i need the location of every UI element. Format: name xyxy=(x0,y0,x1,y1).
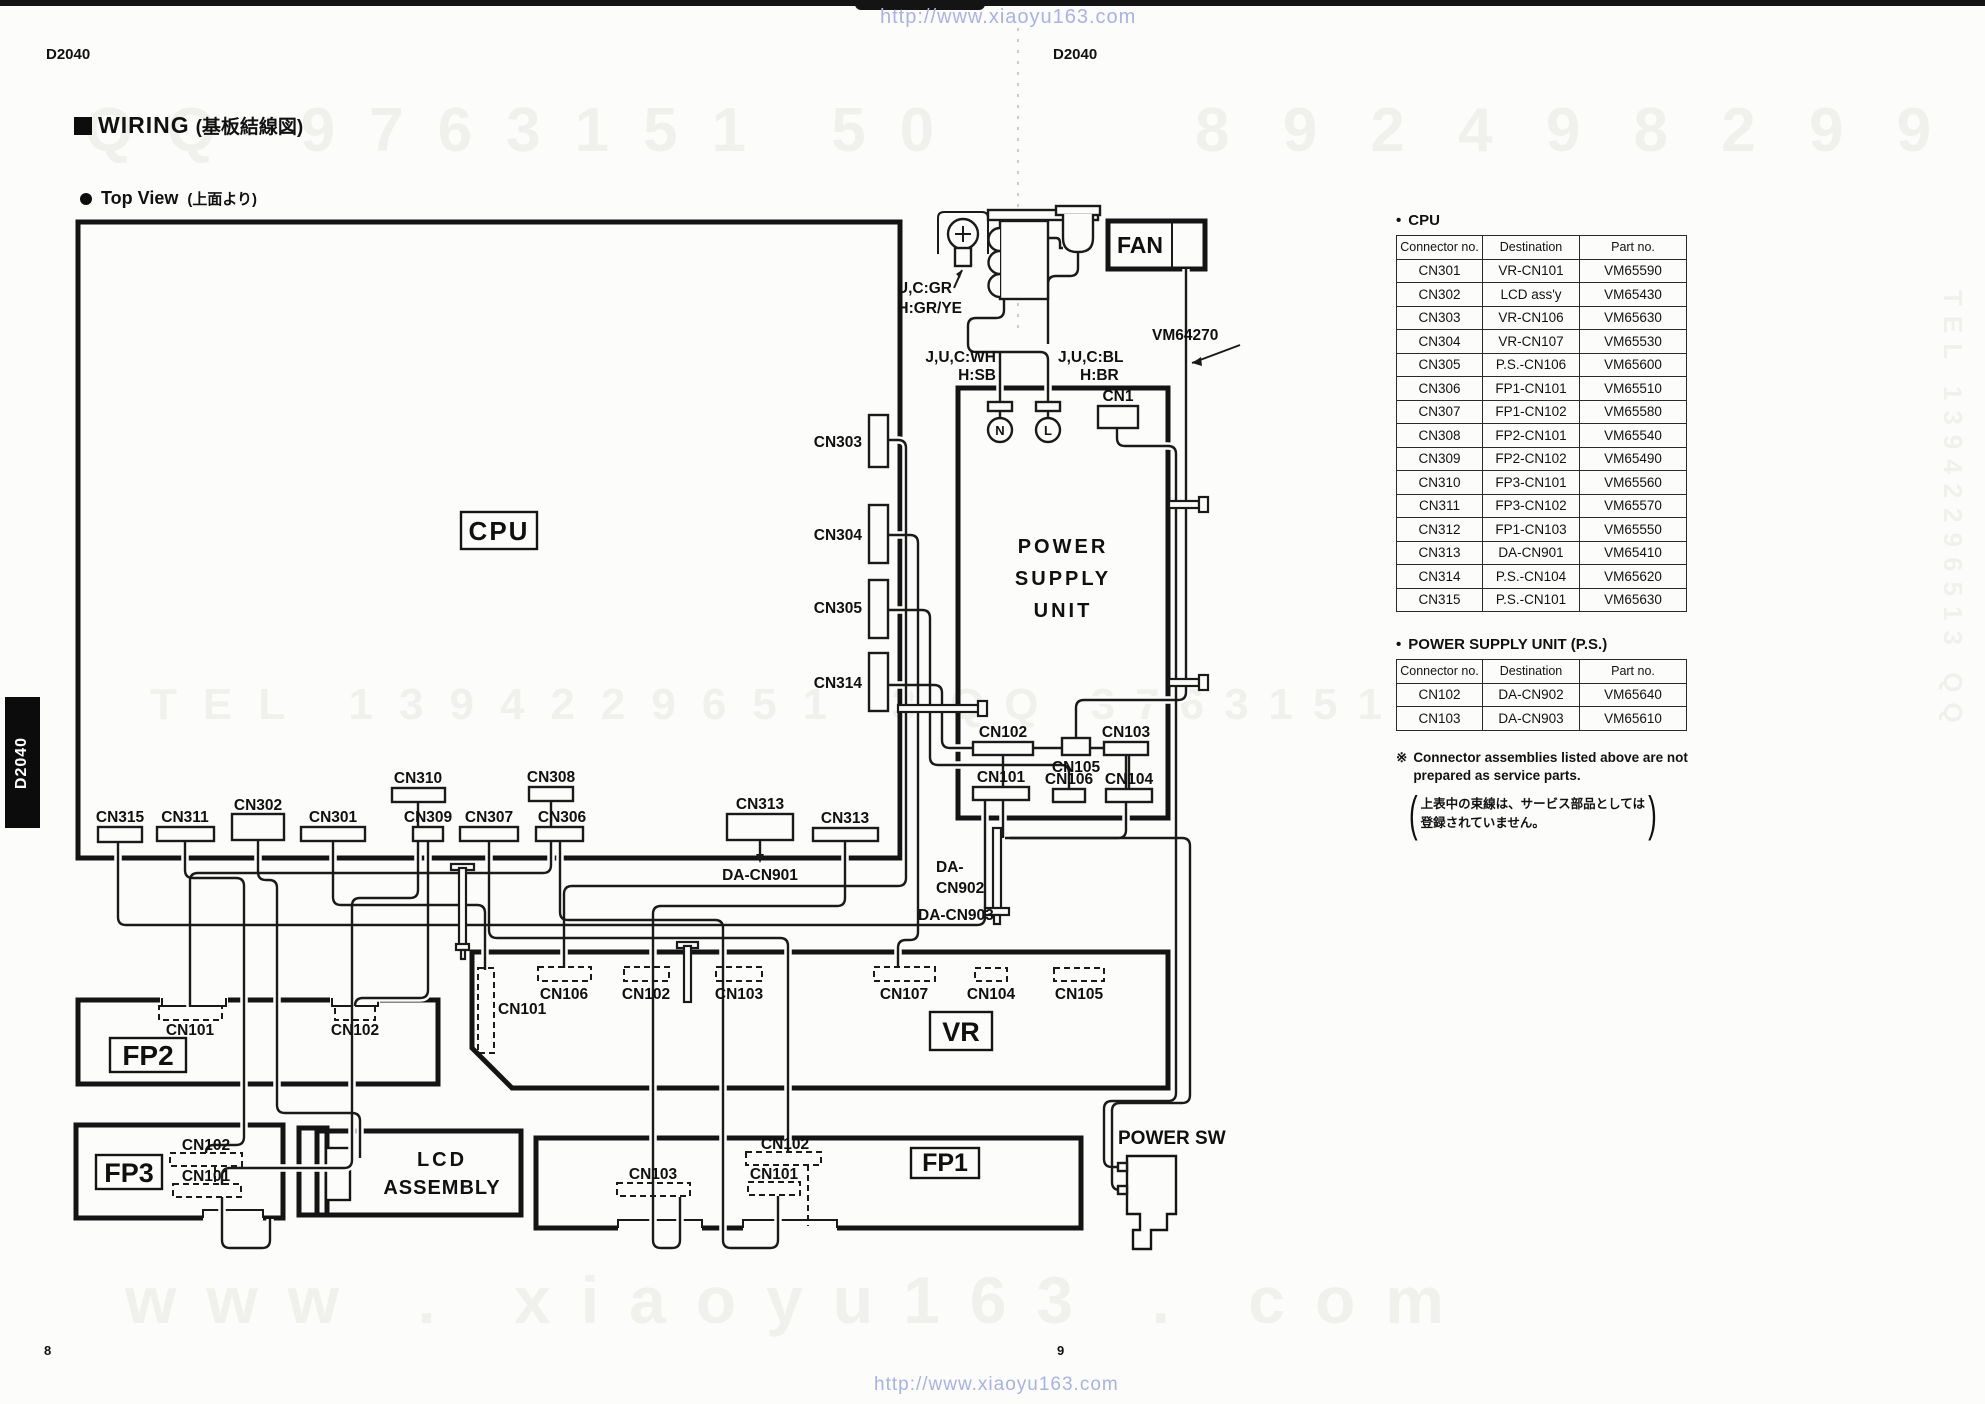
table-row: CN312FP1-CN103VM65550 xyxy=(1397,518,1687,542)
svg-text:SUPPLY: SUPPLY xyxy=(1015,568,1111,590)
svg-text:CN102: CN102 xyxy=(331,1022,379,1039)
table-cell: VM65410 xyxy=(1580,541,1687,565)
table-cell: CN314 xyxy=(1397,565,1483,589)
table-cell: VM65490 xyxy=(1580,447,1687,471)
table-cell: DA-CN902 xyxy=(1483,683,1580,707)
table-cell: VR-CN106 xyxy=(1483,306,1580,330)
table-cell: VM65630 xyxy=(1580,588,1687,612)
table-cell: CN102 xyxy=(1397,683,1483,707)
table-row: CN303VR-CN106VM65630 xyxy=(1397,306,1687,330)
psu-connectors: CN1 CN102 CN105 CN103 CN101 CN106 CN104 … xyxy=(918,388,1154,924)
svg-text:H:SB: H:SB xyxy=(958,367,996,384)
svg-text:ASSEMBLY: ASSEMBLY xyxy=(383,1177,500,1199)
fp2-block: FP2 xyxy=(78,996,438,1084)
svg-text:CN313: CN313 xyxy=(736,796,785,813)
table-cell: VM65510 xyxy=(1580,377,1687,401)
svg-text:CN104: CN104 xyxy=(967,986,1016,1003)
vr-block: VR xyxy=(472,952,1168,1088)
close-paren: ) xyxy=(1645,785,1660,844)
svg-text:H:BR: H:BR xyxy=(1080,367,1119,384)
table-row: CN308FP2-CN101VM65540 xyxy=(1397,424,1687,448)
svg-text:CN303: CN303 xyxy=(814,434,863,451)
column-header: Destination xyxy=(1483,236,1580,260)
svg-text:DA-CN903: DA-CN903 xyxy=(918,907,994,924)
table-row: CN307FP1-CN102VM65580 xyxy=(1397,400,1687,424)
table-cell: VM65630 xyxy=(1580,306,1687,330)
transformer-assembly xyxy=(938,206,1100,299)
svg-text:CPU: CPU xyxy=(469,516,530,546)
table-row: CN311FP3-CN102VM65570 xyxy=(1397,494,1687,518)
open-paren: ( xyxy=(1406,785,1421,844)
svg-text:N: N xyxy=(995,423,1004,438)
table-cell: CN311 xyxy=(1397,494,1483,518)
svg-text:CN101: CN101 xyxy=(182,1168,231,1185)
svg-text:CN301: CN301 xyxy=(309,809,358,826)
table-cell: FP3-CN101 xyxy=(1483,471,1580,495)
table-cell: VM65610 xyxy=(1580,707,1687,731)
table-cell: VM65600 xyxy=(1580,353,1687,377)
table-cell: P.S.-CN106 xyxy=(1483,353,1580,377)
table-row: CN315P.S.-CN101VM65630 xyxy=(1397,588,1687,612)
table-cell: CN306 xyxy=(1397,377,1483,401)
psu-table-section: • POWER SUPPLY UNIT (P.S.) Connector no.… xyxy=(1396,636,1692,731)
table-cell: FP1-CN101 xyxy=(1483,377,1580,401)
svg-text:CN308: CN308 xyxy=(527,769,576,786)
table-cell: CN313 xyxy=(1397,541,1483,565)
svg-text:FP3: FP3 xyxy=(104,1158,154,1188)
power-switch: POWER SW xyxy=(1118,1128,1226,1249)
table-header-row: Connector no. Destination Part no. xyxy=(1397,660,1687,684)
table-row: CN310FP3-CN101VM65560 xyxy=(1397,471,1687,495)
column-header: Connector no. xyxy=(1397,660,1483,684)
svg-text:L: L xyxy=(1044,423,1052,438)
svg-text:CN311: CN311 xyxy=(161,809,209,826)
footnote-text: Connector assemblies listed above are no… xyxy=(1413,749,1688,785)
svg-text:CN102: CN102 xyxy=(761,1136,809,1153)
table-cell: P.S.-CN104 xyxy=(1483,565,1580,589)
psu-table: Connector no. Destination Part no. CN102… xyxy=(1396,659,1687,731)
table-row: CN314P.S.-CN104VM65620 xyxy=(1397,565,1687,589)
cpu-edge-connectors: CN303 CN304 CN305 CN314 xyxy=(814,415,888,711)
fan-block: FAN xyxy=(1108,221,1205,269)
table-cell: VM65570 xyxy=(1580,494,1687,518)
svg-text:J,U,C:WH: J,U,C:WH xyxy=(925,349,996,366)
table-cell: CN302 xyxy=(1397,283,1483,307)
svg-text:CN315: CN315 xyxy=(96,809,145,826)
ac-terminals: N L xyxy=(988,402,1060,442)
svg-text:DA-CN901: DA-CN901 xyxy=(722,867,798,884)
table-cell: VM65580 xyxy=(1580,400,1687,424)
table-cell: VR-CN101 xyxy=(1483,259,1580,283)
svg-text:CN101: CN101 xyxy=(977,769,1026,786)
svg-text:CN105: CN105 xyxy=(1055,986,1104,1003)
svg-text:CN313: CN313 xyxy=(821,810,870,827)
ac-plug-icon xyxy=(1063,214,1093,252)
column-header: Destination xyxy=(1483,660,1580,684)
table-row: CN302LCD ass'yVM65430 xyxy=(1397,283,1687,307)
bullet-icon: • xyxy=(1396,636,1401,653)
table-cell: VR-CN107 xyxy=(1483,330,1580,354)
table-cell: FP1-CN102 xyxy=(1483,400,1580,424)
svg-text:CN1: CN1 xyxy=(1102,388,1133,405)
svg-text:CN103: CN103 xyxy=(715,986,764,1003)
manual-page: QQ 9763151 50 8 9 2 4 9 8 2 9 9 TEL 1394… xyxy=(0,0,1985,1404)
svg-text:CN101: CN101 xyxy=(498,1001,547,1018)
svg-text:CN103: CN103 xyxy=(629,1166,678,1183)
table-row: CN306FP1-CN101VM65510 xyxy=(1397,377,1687,401)
table-cell: VM65430 xyxy=(1580,283,1687,307)
svg-text:CN106: CN106 xyxy=(540,986,589,1003)
svg-text:CN101: CN101 xyxy=(166,1022,215,1039)
svg-text:CN104: CN104 xyxy=(1105,771,1154,788)
svg-text:CN107: CN107 xyxy=(880,986,928,1003)
cpu-block: CPU xyxy=(78,222,900,858)
table-cell: CN304 xyxy=(1397,330,1483,354)
svg-text:CN309: CN309 xyxy=(404,809,453,826)
table-cell: FP3-CN102 xyxy=(1483,494,1580,518)
footnote-mark: ※ xyxy=(1396,749,1407,785)
table-cell: CN310 xyxy=(1397,471,1483,495)
column-header: Part no. xyxy=(1580,660,1687,684)
svg-text:POWER: POWER xyxy=(1018,536,1109,558)
svg-text:VM64270: VM64270 xyxy=(1152,327,1218,344)
svg-text:U,C:GR: U,C:GR xyxy=(897,280,952,297)
cpu-table-title-text: CPU xyxy=(1408,212,1440,229)
svg-text:CN102: CN102 xyxy=(622,986,670,1003)
table-cell: CN303 xyxy=(1397,306,1483,330)
svg-text:LCD: LCD xyxy=(417,1149,467,1171)
table-cell: FP1-CN103 xyxy=(1483,518,1580,542)
table-cell: VM65550 xyxy=(1580,518,1687,542)
column-header: Connector no. xyxy=(1397,236,1483,260)
parts-tables: • CPU Connector no. Destination Part no.… xyxy=(1396,212,1692,834)
svg-text:POWER SW: POWER SW xyxy=(1118,1128,1226,1149)
svg-text:CN102: CN102 xyxy=(979,724,1027,741)
lcd-assembly-block: LCD ASSEMBLY xyxy=(317,1131,521,1215)
table-cell: FP2-CN101 xyxy=(1483,424,1580,448)
ground-screw-icon xyxy=(948,219,978,266)
table-cell: VM65540 xyxy=(1580,424,1687,448)
svg-text:CN106: CN106 xyxy=(1045,771,1094,788)
footnote-text-jp: 上表中の束線は、サービス部品としては登録されていません。 xyxy=(1421,795,1645,834)
svg-text:CN302: CN302 xyxy=(234,797,282,814)
svg-text:FAN: FAN xyxy=(1117,232,1163,258)
table-cell: VM65590 xyxy=(1580,259,1687,283)
svg-text:J,U,C:BL: J,U,C:BL xyxy=(1058,349,1123,366)
svg-text:CN902: CN902 xyxy=(936,880,984,897)
table-cell: VM65530 xyxy=(1580,330,1687,354)
table-cell: CN315 xyxy=(1397,588,1483,612)
svg-text:CN101: CN101 xyxy=(750,1166,799,1183)
table-cell: VM65640 xyxy=(1580,683,1687,707)
table-cell: CN312 xyxy=(1397,518,1483,542)
cpu-table-title: • CPU xyxy=(1396,212,1692,229)
svg-text:CN306: CN306 xyxy=(538,809,587,826)
table-row: CN313DA-CN901VM65410 xyxy=(1397,541,1687,565)
svg-text:CN314: CN314 xyxy=(814,675,863,692)
svg-text:CN305: CN305 xyxy=(814,600,863,617)
table-cell: CN309 xyxy=(1397,447,1483,471)
table-row: CN309FP2-CN102VM65490 xyxy=(1397,447,1687,471)
coil-icon xyxy=(989,228,1001,297)
svg-text:VR: VR xyxy=(942,1017,980,1047)
table-cell: CN301 xyxy=(1397,259,1483,283)
fp2-connectors: CN101 CN102 xyxy=(159,1006,379,1039)
table-cell: CN307 xyxy=(1397,400,1483,424)
svg-text:FP1: FP1 xyxy=(922,1149,968,1177)
table-cell: FP2-CN102 xyxy=(1483,447,1580,471)
table-cell: CN103 xyxy=(1397,707,1483,731)
svg-text:DA-: DA- xyxy=(936,859,964,876)
table-cell: CN305 xyxy=(1397,353,1483,377)
bullet-icon: • xyxy=(1396,212,1401,229)
table-row: CN304VR-CN107VM65530 xyxy=(1397,330,1687,354)
table-row: CN102DA-CN902VM65640 xyxy=(1397,683,1687,707)
svg-text:CN103: CN103 xyxy=(1102,724,1151,741)
fp1-connectors: CN103 CN102 CN101 xyxy=(617,1136,821,1226)
table-header-row: Connector no. Destination Part no. xyxy=(1397,236,1687,260)
footnote: ※ Connector assemblies listed above are … xyxy=(1396,749,1696,834)
svg-text:FP2: FP2 xyxy=(122,1040,173,1071)
table-cell: DA-CN901 xyxy=(1483,541,1580,565)
svg-text:H:GR/YE: H:GR/YE xyxy=(897,300,962,317)
cpu-table: Connector no. Destination Part no. CN301… xyxy=(1396,235,1687,612)
svg-text:CN307: CN307 xyxy=(465,809,513,826)
table-row: CN103DA-CN903VM65610 xyxy=(1397,707,1687,731)
svg-text:CN102: CN102 xyxy=(182,1137,230,1154)
table-cell: LCD ass'y xyxy=(1483,283,1580,307)
psu-table-title: • POWER SUPPLY UNIT (P.S.) xyxy=(1396,636,1692,653)
table-cell: P.S.-CN101 xyxy=(1483,588,1580,612)
svg-text:UNIT: UNIT xyxy=(1034,600,1093,622)
table-row: CN305P.S.-CN106VM65600 xyxy=(1397,353,1687,377)
psu-table-title-text: POWER SUPPLY UNIT (P.S.) xyxy=(1408,636,1607,653)
table-row: CN301VR-CN101VM65590 xyxy=(1397,259,1687,283)
table-cell: VM65620 xyxy=(1580,565,1687,589)
table-cell: VM65560 xyxy=(1580,471,1687,495)
table-cell: CN308 xyxy=(1397,424,1483,448)
svg-text:CN304: CN304 xyxy=(814,527,863,544)
table-cell: DA-CN903 xyxy=(1483,707,1580,731)
svg-text:CN310: CN310 xyxy=(394,770,442,787)
column-header: Part no. xyxy=(1580,236,1687,260)
